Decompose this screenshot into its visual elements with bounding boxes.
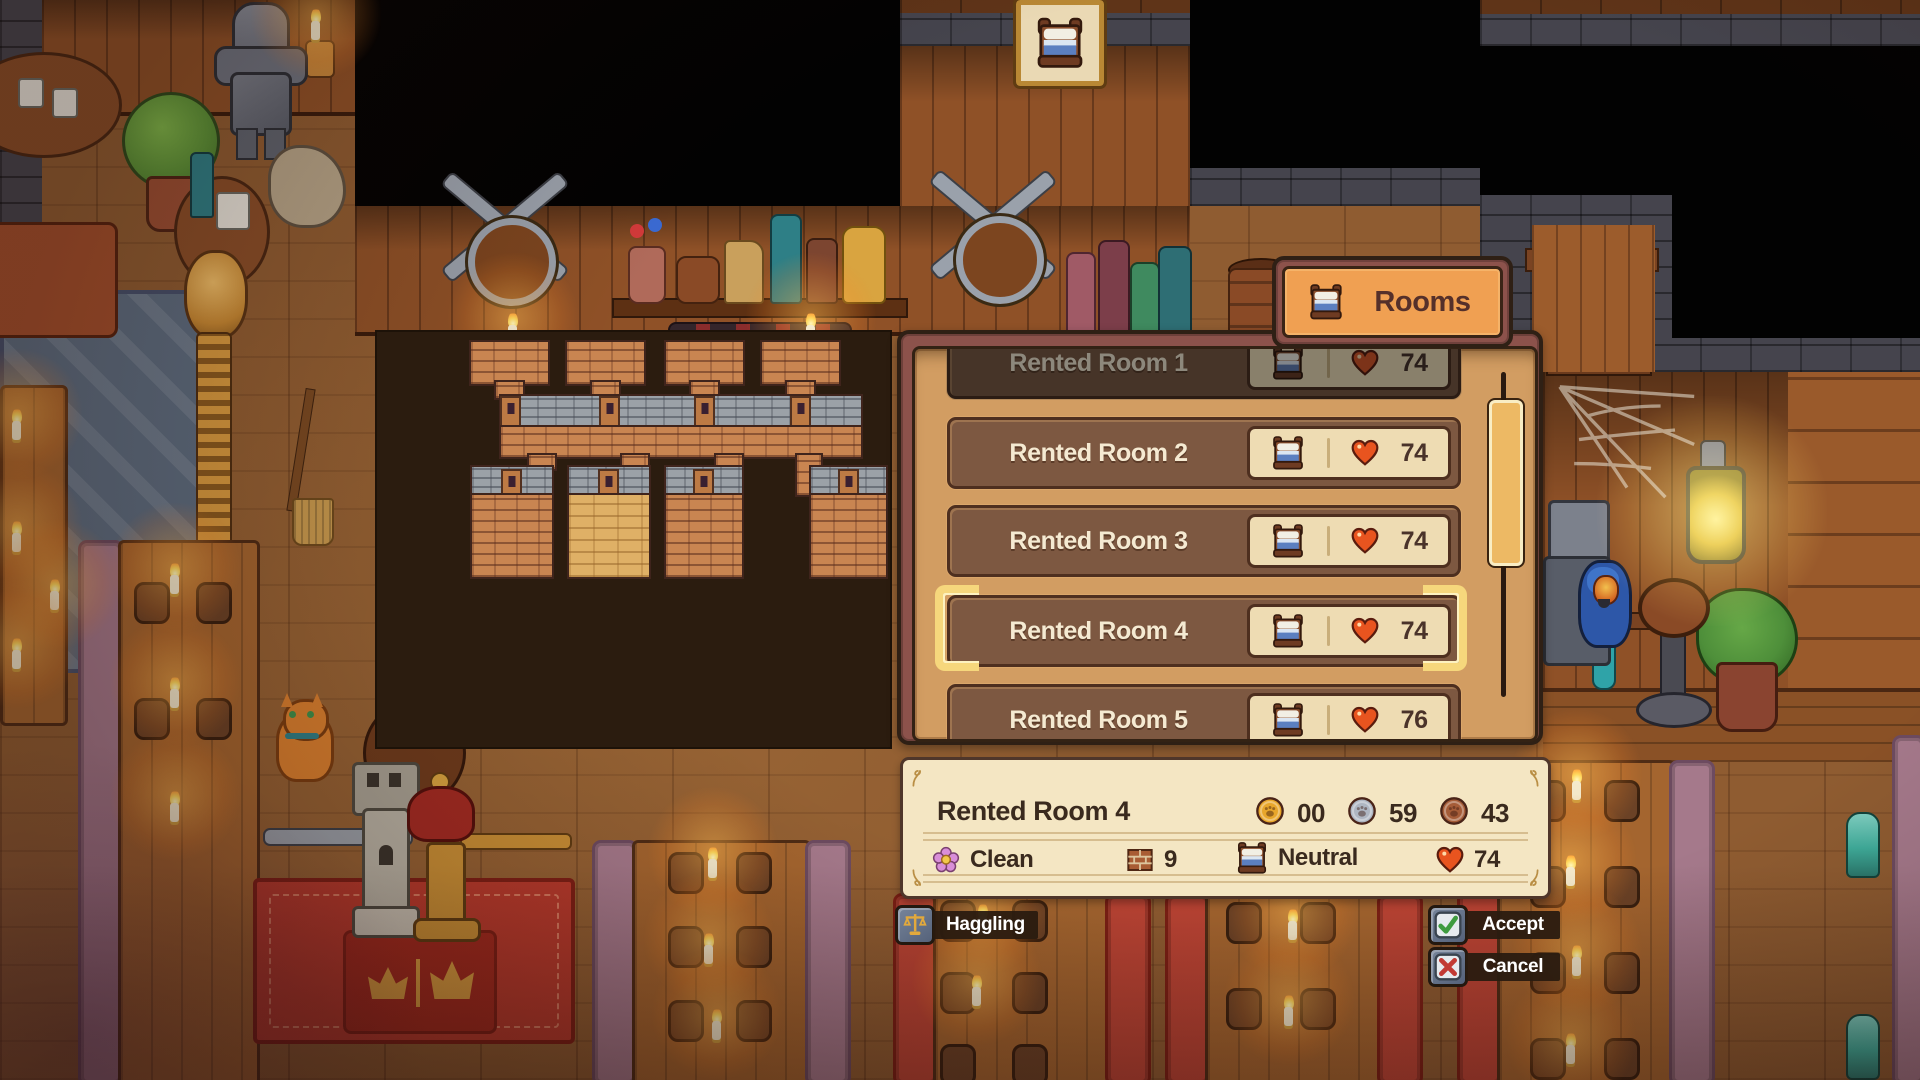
side-table bbox=[0, 222, 118, 338]
candle-flame-icon bbox=[1566, 854, 1576, 870]
room-name: Rented Room 1 bbox=[950, 349, 1247, 378]
rook-statue-base bbox=[352, 906, 420, 938]
rook-window bbox=[379, 845, 393, 865]
mood-label: Neutral bbox=[1278, 844, 1358, 872]
shield-icon bbox=[468, 218, 556, 306]
clay-pot bbox=[676, 256, 720, 304]
tavern-scene: Rented Room 1 74 Rented Room 2 74 bbox=[0, 0, 1920, 1080]
candle-flame-icon bbox=[708, 846, 718, 862]
bed-icon bbox=[1235, 841, 1269, 875]
heart-icon bbox=[1350, 616, 1380, 646]
check-glyph-icon bbox=[1433, 910, 1463, 940]
placemat bbox=[668, 852, 704, 894]
placemat bbox=[1604, 1038, 1640, 1080]
bench-cushion bbox=[1105, 893, 1151, 1080]
heart-icon bbox=[1435, 845, 1465, 875]
room-stats-pill: 76 bbox=[1247, 693, 1451, 742]
placemat bbox=[1604, 780, 1640, 822]
bench-cushion bbox=[1892, 735, 1920, 1080]
cancel-button[interactable]: Cancel bbox=[1428, 947, 1560, 987]
room-hearts-value: 74 bbox=[1401, 527, 1428, 556]
bottle bbox=[806, 238, 838, 304]
hearts-value: 74 bbox=[1474, 846, 1500, 874]
dining-table bbox=[0, 385, 68, 726]
stand-cap bbox=[407, 786, 475, 842]
mug bbox=[216, 192, 250, 230]
heart-icon bbox=[1350, 526, 1380, 556]
room-hearts-value: 74 bbox=[1401, 617, 1428, 646]
candle-flame-icon bbox=[712, 1008, 722, 1024]
x-icon bbox=[1428, 947, 1468, 987]
separator-line bbox=[923, 832, 1528, 841]
rooms-list-viewport: Rented Room 1 74 Rented Room 2 74 bbox=[912, 346, 1538, 742]
placemat bbox=[196, 698, 232, 740]
armor-torso bbox=[230, 72, 292, 136]
pill-divider bbox=[1327, 348, 1330, 378]
bed-icon bbox=[1270, 702, 1306, 738]
rooms-floorplan-map bbox=[375, 330, 892, 749]
placemat bbox=[940, 1044, 976, 1080]
placemat bbox=[1604, 952, 1640, 994]
bed-icon bbox=[1033, 16, 1087, 70]
placemat bbox=[736, 852, 772, 894]
candle-flame-icon bbox=[1566, 1032, 1576, 1048]
bed-icon bbox=[1270, 523, 1306, 559]
scales-icon bbox=[895, 905, 935, 945]
rook-notch bbox=[389, 773, 401, 787]
corner-flourish-icon bbox=[1520, 766, 1542, 788]
broom-head bbox=[292, 498, 334, 546]
flower-icon bbox=[931, 845, 961, 875]
cleanliness-label: Clean bbox=[970, 846, 1033, 874]
heart-icon bbox=[1350, 348, 1380, 378]
pill-divider bbox=[1327, 526, 1330, 556]
flower-red bbox=[630, 224, 644, 238]
placemat bbox=[668, 926, 704, 968]
cancel-label: Cancel bbox=[1466, 953, 1560, 981]
room-detail-panel: Rented Room 4 00 59 43 Clean 9 Neutral 7… bbox=[900, 757, 1551, 899]
heart-icon bbox=[1350, 438, 1380, 468]
candle-flame-icon bbox=[1284, 994, 1294, 1010]
scrollbar-thumb[interactable] bbox=[1489, 400, 1523, 566]
map-room-body bbox=[809, 493, 888, 579]
wall-lamp bbox=[305, 40, 335, 78]
placemat bbox=[196, 582, 232, 624]
copper-coin-icon bbox=[1439, 796, 1469, 826]
crown-icon bbox=[430, 961, 474, 999]
candle-flame-icon bbox=[170, 790, 180, 806]
map-door bbox=[500, 396, 521, 427]
bench-cushion bbox=[1377, 893, 1423, 1080]
placemat bbox=[940, 972, 976, 1014]
dining-table bbox=[632, 840, 811, 1080]
vase bbox=[628, 246, 666, 304]
silver-coin-icon bbox=[1347, 796, 1377, 826]
emblem-divider bbox=[416, 959, 420, 1007]
check-icon bbox=[1428, 905, 1468, 945]
flower-blue bbox=[648, 218, 662, 232]
cleanliness-stat: Clean bbox=[931, 844, 1033, 876]
bed-icon bbox=[1270, 435, 1306, 471]
map-door bbox=[694, 396, 715, 427]
mug bbox=[52, 88, 78, 118]
cat-eye bbox=[289, 711, 296, 718]
wall-candle-flame-icon bbox=[508, 312, 518, 328]
mermaid-figurine bbox=[1846, 812, 1880, 878]
haggling-label: Haggling bbox=[933, 911, 1038, 939]
map-room-body bbox=[664, 493, 744, 579]
armor-leg bbox=[236, 128, 258, 160]
accept-button[interactable]: Accept bbox=[1428, 905, 1560, 945]
tab-rooms[interactable]: Rooms bbox=[1272, 256, 1513, 348]
bottle bbox=[190, 152, 214, 218]
dark-opening-far-right bbox=[1672, 195, 1920, 338]
candle-flame-icon bbox=[1572, 944, 1582, 960]
bench-cushion bbox=[805, 840, 851, 1080]
map-room-body-highlighted bbox=[567, 493, 651, 579]
candle-flame-icon bbox=[170, 676, 180, 692]
cat-eye bbox=[307, 711, 314, 718]
placemat bbox=[1226, 988, 1262, 1030]
rook-statue-body bbox=[362, 808, 410, 918]
dark-opening-center bbox=[355, 0, 900, 206]
beds-stat: 9 bbox=[1125, 844, 1177, 876]
corner-flourish-icon bbox=[909, 766, 931, 788]
placemat bbox=[1530, 1038, 1566, 1080]
red-carpet bbox=[253, 878, 575, 1044]
silver-value: 59 bbox=[1389, 798, 1417, 829]
cat-collar bbox=[285, 733, 319, 739]
bed-icon bbox=[1270, 346, 1306, 381]
placemat bbox=[1012, 1044, 1048, 1080]
room-name: Rented Room 4 bbox=[950, 617, 1247, 646]
candle-flame-icon bbox=[1572, 768, 1582, 784]
room-stats-pill: 74 bbox=[1247, 346, 1451, 390]
beds-value: 9 bbox=[1164, 846, 1177, 874]
accept-label: Accept bbox=[1466, 911, 1560, 939]
bottle bbox=[1158, 246, 1192, 336]
placemat bbox=[134, 698, 170, 740]
copper-value: 43 bbox=[1481, 798, 1509, 829]
room-name: Rented Room 2 bbox=[950, 439, 1247, 468]
placemat bbox=[134, 582, 170, 624]
gold-value: 00 bbox=[1297, 798, 1325, 829]
crown-icon bbox=[368, 967, 408, 999]
placemat bbox=[668, 1000, 704, 1042]
candle-flame-icon bbox=[50, 578, 60, 594]
placemat bbox=[736, 1000, 772, 1042]
bed-icon bbox=[1270, 613, 1306, 649]
pill-divider bbox=[1327, 438, 1330, 468]
bench-cushion bbox=[1669, 760, 1715, 1080]
pill-divider bbox=[1327, 616, 1330, 646]
cat bbox=[276, 712, 334, 782]
separator-line bbox=[923, 874, 1528, 883]
room-list-item-selected[interactable]: Rented Room 4 74 bbox=[947, 595, 1461, 667]
plant-pot bbox=[1716, 662, 1778, 732]
detail-room-title: Rented Room 4 bbox=[937, 796, 1130, 827]
gold-coin-icon bbox=[1255, 796, 1285, 826]
map-room-body bbox=[470, 493, 554, 579]
stone-band-right bbox=[1480, 14, 1920, 46]
carpet-emblem bbox=[343, 930, 497, 1034]
candle-flame-icon bbox=[12, 637, 22, 653]
room-hearts-value: 74 bbox=[1401, 439, 1428, 468]
room-list-item[interactable]: Rented Room 1 74 bbox=[947, 346, 1461, 399]
candle-flame-icon bbox=[12, 408, 22, 424]
gold-rack-bar bbox=[460, 833, 572, 850]
stone-band-lower bbox=[1650, 338, 1920, 372]
room-list-item[interactable]: Rented Room 3 74 bbox=[947, 505, 1461, 577]
stone-ledge bbox=[1190, 168, 1480, 206]
brick-icon bbox=[1125, 845, 1155, 875]
stool-base bbox=[1636, 692, 1712, 728]
placemat bbox=[1300, 988, 1336, 1030]
bottle bbox=[1066, 252, 1096, 336]
wall-candle-flame-icon bbox=[806, 312, 816, 328]
bed-icon bbox=[1307, 283, 1345, 321]
scales-glyph-icon bbox=[901, 911, 929, 939]
room-hearts-value: 76 bbox=[1401, 706, 1428, 735]
rooms-panel: Rented Room 1 74 Rented Room 2 74 bbox=[897, 330, 1543, 745]
wood-beam-right bbox=[1480, 0, 1920, 14]
candle-flame-icon bbox=[972, 974, 982, 990]
placemat bbox=[736, 926, 772, 968]
bottle bbox=[1098, 240, 1130, 336]
candle-flame-icon bbox=[1288, 908, 1298, 924]
bed-sign-icon bbox=[1016, 0, 1104, 86]
gold-post-top bbox=[184, 250, 248, 340]
room-name: Rented Room 5 bbox=[950, 706, 1247, 735]
gold-jug bbox=[842, 226, 886, 304]
map-door bbox=[790, 396, 811, 427]
placemat bbox=[1012, 972, 1048, 1014]
tab-rooms-inner: Rooms bbox=[1282, 266, 1503, 338]
heart-icon bbox=[1350, 705, 1380, 735]
shield-icon bbox=[956, 216, 1044, 304]
boot bbox=[724, 240, 764, 304]
mug bbox=[18, 78, 44, 108]
placemat bbox=[1226, 902, 1262, 944]
room-list-item[interactable]: Rented Room 5 76 bbox=[947, 684, 1461, 742]
candle-flame-icon bbox=[170, 562, 180, 578]
lamp-flame-icon bbox=[311, 8, 321, 24]
bottle bbox=[770, 214, 802, 304]
dark-opening-right bbox=[1190, 0, 1480, 168]
hearts-stat: 74 bbox=[1435, 844, 1500, 876]
map-door bbox=[599, 396, 620, 427]
room-name: Rented Room 3 bbox=[950, 527, 1247, 556]
dark-opening-topright bbox=[1480, 46, 1920, 196]
room-stats-pill: 74 bbox=[1247, 604, 1451, 658]
haggling-button[interactable]: Haggling bbox=[895, 905, 1038, 945]
painting-wall bbox=[1532, 225, 1655, 372]
room-hearts-value: 74 bbox=[1401, 349, 1428, 378]
lantern-glow bbox=[1597, 396, 1827, 626]
placemat bbox=[1300, 902, 1336, 944]
candle-flame-icon bbox=[12, 520, 22, 536]
pill-divider bbox=[1327, 705, 1330, 735]
x-glyph-icon bbox=[1433, 952, 1463, 982]
candle-flame-icon bbox=[704, 932, 714, 948]
bottle bbox=[1130, 262, 1160, 336]
room-stats-pill: 74 bbox=[1247, 514, 1451, 568]
rook-notch bbox=[367, 773, 379, 787]
tab-rooms-label: Rooms bbox=[1345, 286, 1500, 319]
gold-stand-base bbox=[413, 918, 481, 942]
room-stats-pill: 74 bbox=[1247, 426, 1451, 480]
mood-stat: Neutral bbox=[1235, 842, 1358, 874]
mermaid-figurine bbox=[1846, 1014, 1880, 1080]
room-list-item[interactable]: Rented Room 2 74 bbox=[947, 417, 1461, 489]
placemat bbox=[1604, 866, 1640, 908]
